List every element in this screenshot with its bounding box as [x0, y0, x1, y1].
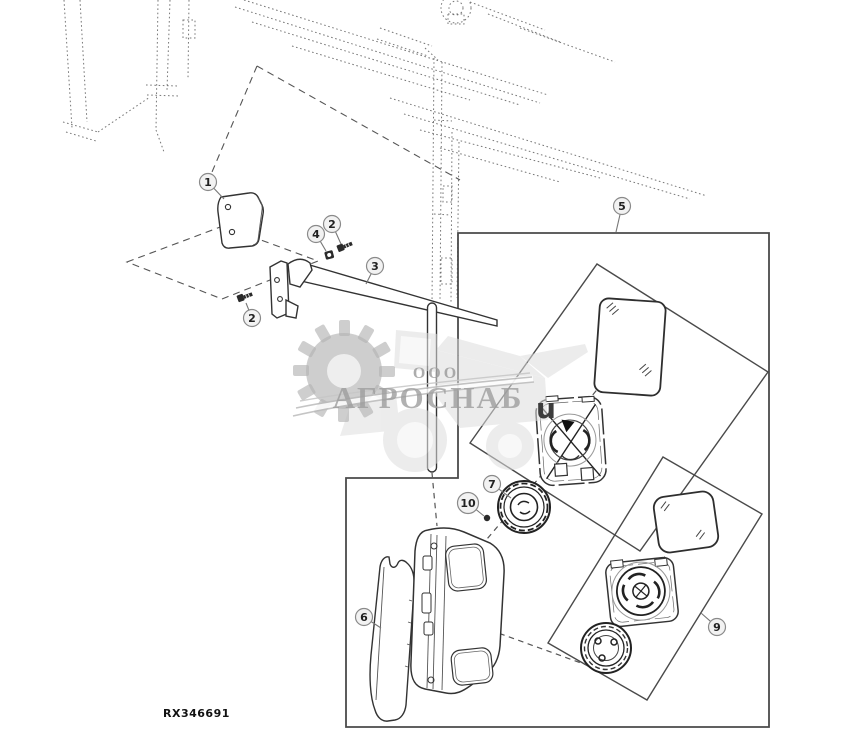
callout-number: 2 — [248, 312, 256, 325]
actuator-part7 — [498, 481, 550, 533]
mirror-head-housing — [411, 528, 504, 694]
callout-number: 4 — [312, 228, 320, 241]
mirror-glass-lower — [652, 490, 719, 554]
actuator-lower — [581, 623, 631, 673]
parts-diagram-page: ООО АГРОСНАБ u 12432510769 RX346691 — [0, 0, 841, 731]
callout-number: 2 — [328, 218, 336, 231]
callout-number: 3 — [371, 260, 379, 273]
set-screw-part10 — [484, 515, 490, 521]
figure-code: RX346691 — [163, 707, 230, 720]
callout-number: 7 — [488, 478, 496, 491]
watermark-company-name: АГРОСНАБ — [333, 380, 524, 415]
watermark-stray-glyph: u — [536, 392, 556, 425]
mirror-glass-upper — [594, 298, 666, 396]
mirror-backplate-lower — [605, 555, 680, 628]
callout-number: 6 — [360, 611, 368, 624]
mounting-plate-part1 — [218, 193, 264, 248]
callout-number: 10 — [460, 497, 476, 510]
callout-number: 9 — [713, 621, 721, 634]
callout-number: 5 — [618, 200, 626, 213]
callout-number: 1 — [204, 176, 212, 189]
